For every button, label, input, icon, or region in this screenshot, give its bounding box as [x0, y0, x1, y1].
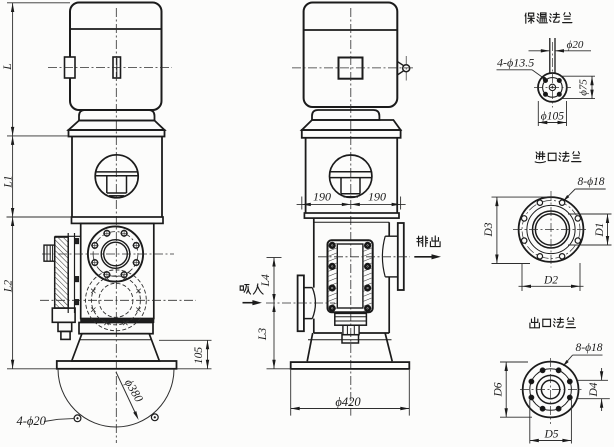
svg-text:8-ϕ18: 8-ϕ18	[578, 176, 605, 188]
svg-text:105: 105	[193, 347, 205, 365]
svg-text:D6: D6	[493, 382, 505, 397]
svg-text:8-ϕ18: 8-ϕ18	[576, 342, 603, 354]
svg-text:D2: D2	[543, 274, 558, 286]
svg-text:190: 190	[313, 190, 331, 204]
svg-text:190: 190	[368, 190, 386, 204]
svg-text:L4: L4	[260, 274, 272, 287]
svg-text:D4: D4	[588, 382, 600, 397]
svg-text:L2: L2	[3, 280, 15, 293]
svg-text:D5: D5	[543, 429, 558, 441]
svg-text:ϕ105: ϕ105	[541, 111, 564, 123]
svg-text:L1: L1	[3, 175, 15, 188]
svg-text:L: L	[2, 63, 14, 70]
svg-text:ϕ75: ϕ75	[578, 79, 590, 96]
svg-text:L3: L3	[257, 328, 269, 341]
svg-text:ϕ20: ϕ20	[567, 39, 584, 51]
svg-text:4-ϕ20: 4-ϕ20	[17, 414, 47, 428]
svg-text:D3: D3	[483, 222, 495, 237]
svg-text:4-ϕ13.5: 4-ϕ13.5	[497, 56, 534, 70]
svg-text:D1: D1	[594, 222, 606, 237]
svg-text:ϕ420: ϕ420	[335, 395, 361, 409]
